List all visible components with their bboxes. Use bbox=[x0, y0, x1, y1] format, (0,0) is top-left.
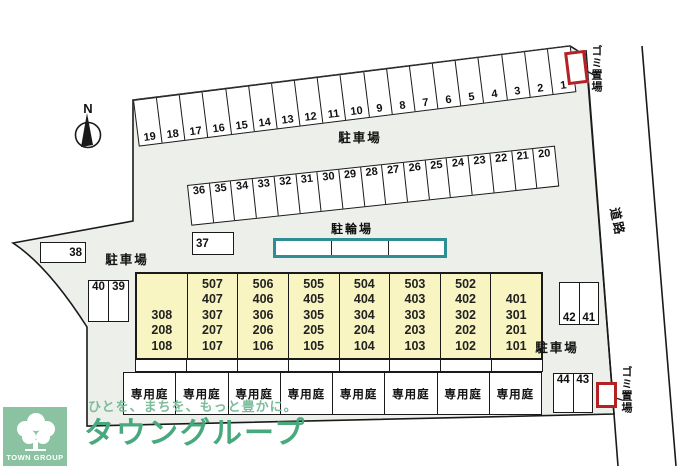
unit-number: 304 bbox=[354, 308, 375, 324]
unit-number: 502 bbox=[455, 277, 476, 293]
unit-number: 507 bbox=[202, 277, 223, 293]
private-garden-cell: 専用庭 bbox=[490, 373, 541, 414]
parking-space: 37 bbox=[193, 233, 233, 254]
unit-number: 105 bbox=[303, 339, 324, 355]
unit-number: 108 bbox=[151, 339, 172, 355]
garbage-area-box bbox=[596, 382, 617, 408]
parking-lot-label: 駐車場 bbox=[82, 249, 172, 268]
unit-number: 505 bbox=[303, 277, 324, 293]
unit-number: 308 bbox=[151, 308, 172, 324]
unit-number: 406 bbox=[253, 292, 274, 308]
building-column: 506406306206106 bbox=[238, 274, 289, 358]
parking-space: 41 bbox=[580, 283, 599, 324]
parking-space: 39 bbox=[109, 281, 128, 321]
north-label: N bbox=[76, 101, 100, 116]
unit-number: 204 bbox=[354, 323, 375, 339]
unit-number: 207 bbox=[202, 323, 223, 339]
entry-cell bbox=[390, 360, 441, 371]
entry-cell bbox=[340, 360, 391, 371]
building-entry-row bbox=[135, 360, 543, 372]
entry-cell bbox=[289, 360, 340, 371]
unit-number: 404 bbox=[354, 292, 375, 308]
parking-space: 38 bbox=[41, 243, 85, 262]
building-column: 505405305205105 bbox=[289, 274, 340, 358]
building-column: 504404304204104 bbox=[340, 274, 391, 358]
building-column: 502402302202102 bbox=[441, 274, 492, 358]
unit-number: 405 bbox=[303, 292, 324, 308]
unit-number: 205 bbox=[303, 323, 324, 339]
unit-number: 301 bbox=[506, 308, 527, 324]
parking-pair-44-43: 44 43 bbox=[553, 373, 593, 413]
unit-number: 302 bbox=[455, 308, 476, 324]
garbage-area-box bbox=[564, 50, 589, 85]
unit-number: 103 bbox=[405, 339, 426, 355]
building-column: 308208108 bbox=[137, 274, 188, 358]
unit-number: 206 bbox=[253, 323, 274, 339]
unit-number: 307 bbox=[202, 308, 223, 324]
bicycle-parking-label: 駐輪場 bbox=[307, 220, 397, 237]
entry-cell bbox=[238, 360, 289, 371]
unit-number: 203 bbox=[405, 323, 426, 339]
unit-number: 401 bbox=[506, 292, 527, 308]
parking-space: 20 bbox=[533, 147, 558, 188]
parking-space: 40 bbox=[89, 281, 109, 321]
parking-space-37: 37 bbox=[192, 232, 234, 255]
unit-number: 305 bbox=[303, 308, 324, 324]
unit-number: 403 bbox=[405, 292, 426, 308]
bicycle-parking-rect bbox=[273, 238, 447, 258]
logo-brand-jp: タウングループ bbox=[84, 408, 306, 452]
town-group-logo: TOWN GROUP bbox=[3, 407, 67, 466]
parking-space: 42 bbox=[560, 283, 580, 324]
unit-number: 202 bbox=[455, 323, 476, 339]
entry-cell bbox=[492, 360, 542, 371]
entry-cell bbox=[187, 360, 238, 371]
parking-space: 44 bbox=[554, 374, 574, 412]
unit-number: 104 bbox=[354, 339, 375, 355]
bicycle-parking-segment bbox=[389, 241, 444, 255]
unit-number: 506 bbox=[253, 277, 274, 293]
parking-pair-42-41: 42 41 bbox=[559, 282, 599, 325]
unit-number: 208 bbox=[151, 323, 172, 339]
unit-number: 402 bbox=[455, 292, 476, 308]
unit-number: 407 bbox=[202, 292, 223, 308]
parking-space: 43 bbox=[574, 374, 593, 412]
unit-number: 106 bbox=[253, 339, 274, 355]
logo-brand-en-text: TOWN GROUP bbox=[3, 453, 67, 462]
unit-number: 107 bbox=[202, 339, 223, 355]
unit-number: 504 bbox=[354, 277, 375, 293]
building-column: 507407307207107 bbox=[188, 274, 239, 358]
bicycle-parking-segment bbox=[332, 241, 388, 255]
unit-number: 303 bbox=[405, 308, 426, 324]
unit-number: 503 bbox=[405, 277, 426, 293]
parking-lot-label: 駐車場 bbox=[512, 337, 602, 356]
private-garden-cell: 専用庭 bbox=[385, 373, 437, 414]
entry-cell bbox=[441, 360, 492, 371]
parking-pair-40-39: 40 39 bbox=[88, 280, 129, 322]
unit-number: 306 bbox=[253, 308, 274, 324]
private-garden-cell: 専用庭 bbox=[438, 373, 490, 414]
site-plan-canvas: 19181716151413121110987654321 3635343332… bbox=[0, 0, 700, 466]
bicycle-parking-segment bbox=[276, 241, 332, 255]
building-unit-grid: 3082081085074073072071075064063062061065… bbox=[135, 272, 543, 360]
garbage-area-label: ゴミ置場 bbox=[619, 366, 632, 430]
parking-lot-label: 駐車場 bbox=[315, 127, 405, 146]
garbage-area-label: ゴミ置場 bbox=[589, 45, 602, 109]
private-garden-cell: 専用庭 bbox=[333, 373, 385, 414]
road-edge-line-right bbox=[642, 46, 676, 466]
unit-number: 102 bbox=[455, 339, 476, 355]
parking-space-38: 38 bbox=[40, 242, 86, 263]
entry-cell bbox=[136, 360, 187, 371]
building-column: 503403303203103 bbox=[390, 274, 441, 358]
compass-icon bbox=[76, 113, 101, 148]
